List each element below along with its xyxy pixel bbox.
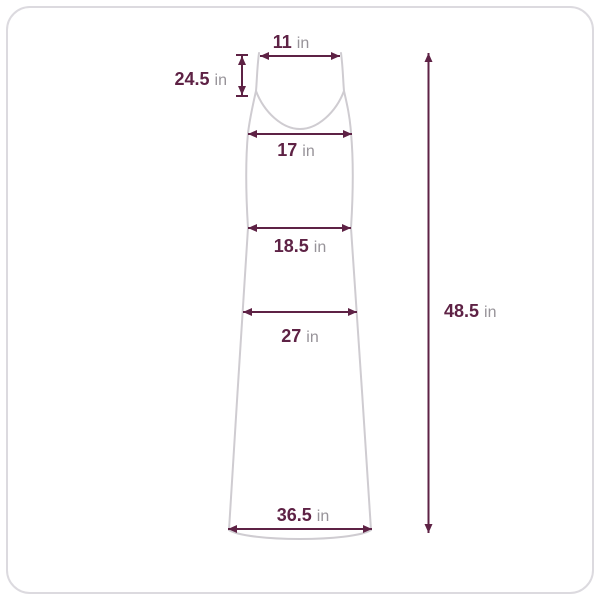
shoulder-width-unit: in (297, 35, 309, 52)
shoulder-width-value: 11 (273, 32, 292, 52)
length-label: 48.5in (444, 301, 497, 321)
dimension-lines (228, 53, 429, 533)
hip-label: 27in (281, 326, 318, 346)
dress-hem-curve (229, 530, 371, 539)
strap-drop-value: 24.5 (175, 69, 210, 89)
dress-neckline (256, 91, 344, 129)
waist-unit: in (314, 239, 326, 256)
bust-label: 17in (277, 140, 314, 160)
bust-value: 17 (277, 140, 297, 160)
dress-right-side-seam (351, 133, 371, 530)
hem-label: 36.5in (277, 505, 330, 525)
dress-measurement-diagram: 11in 24.5in 17in 18.5in 27in 36.5in 48.5… (0, 0, 600, 600)
strap-drop-unit: in (215, 72, 227, 89)
waist-value: 18.5 (274, 236, 309, 256)
bust-unit: in (302, 143, 314, 160)
hip-value: 27 (281, 326, 301, 346)
dress-left-side-seam (229, 133, 248, 530)
strap-drop-label: 24.5in (175, 69, 228, 89)
hem-unit: in (317, 508, 329, 525)
length-value: 48.5 (444, 301, 479, 321)
waist-label: 18.5in (274, 236, 327, 256)
hip-unit: in (306, 329, 318, 346)
dress-outline (229, 53, 371, 539)
shoulder-width-label: 11in (273, 32, 309, 52)
dress-measurement-page: 11in 24.5in 17in 18.5in 27in 36.5in 48.5… (0, 0, 600, 600)
hem-value: 36.5 (277, 505, 312, 525)
length-unit: in (484, 304, 496, 321)
